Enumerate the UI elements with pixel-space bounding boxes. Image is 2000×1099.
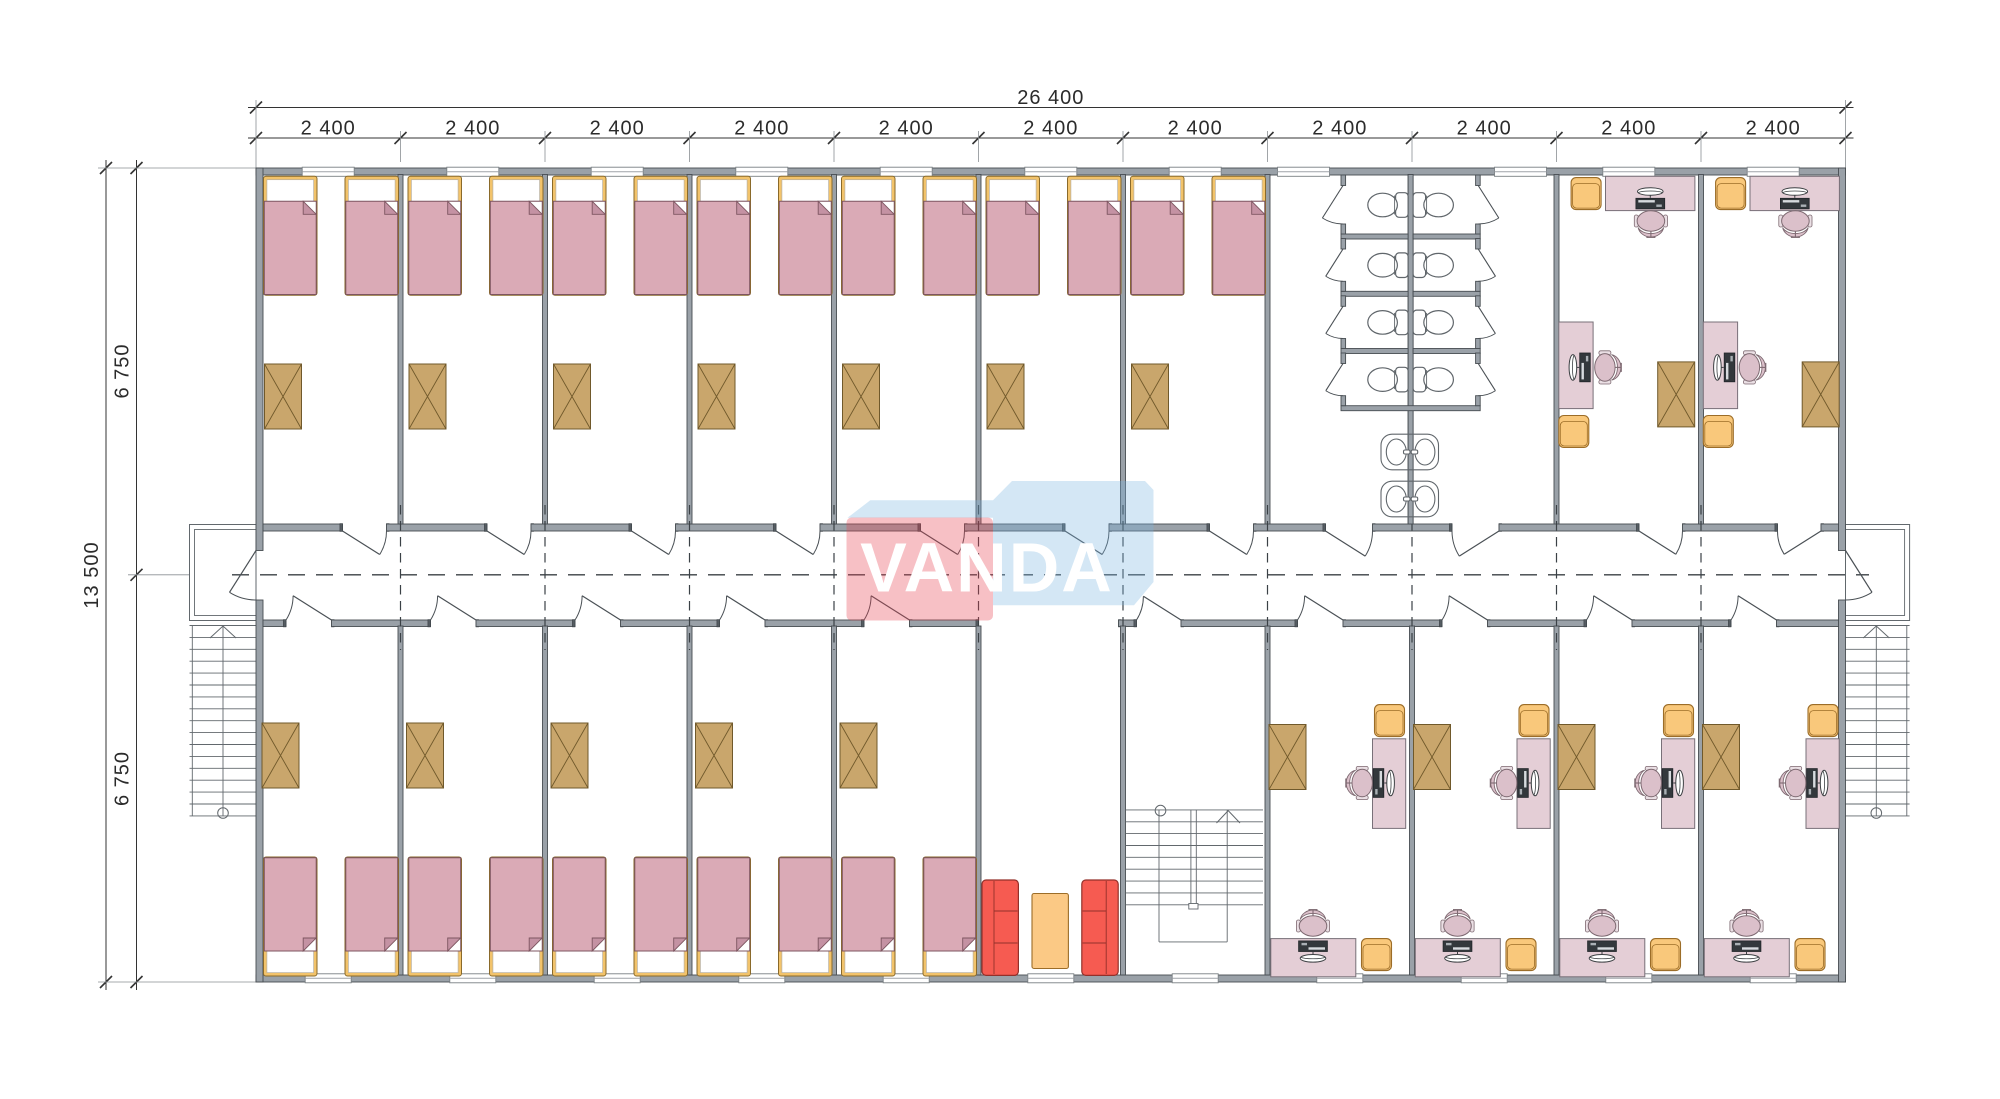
svg-text:13 500: 13 500 [81,541,103,608]
svg-text:2 400: 2 400 [590,118,645,140]
svg-text:2 400: 2 400 [301,118,356,140]
svg-text:2 400: 2 400 [1457,118,1512,140]
svg-text:2 400: 2 400 [734,118,789,140]
svg-text:2 400: 2 400 [1312,118,1367,140]
svg-text:6 750: 6 750 [112,751,134,806]
svg-text:2 400: 2 400 [445,118,500,140]
svg-text:2 400: 2 400 [1023,118,1078,140]
svg-text:VANDA: VANDA [860,529,1114,607]
svg-text:2 400: 2 400 [1746,118,1801,140]
svg-text:2 400: 2 400 [1601,118,1656,140]
svg-text:26 400: 26 400 [1017,87,1084,109]
svg-text:6 750: 6 750 [112,343,134,398]
svg-text:2 400: 2 400 [1168,118,1223,140]
svg-text:2 400: 2 400 [879,118,934,140]
